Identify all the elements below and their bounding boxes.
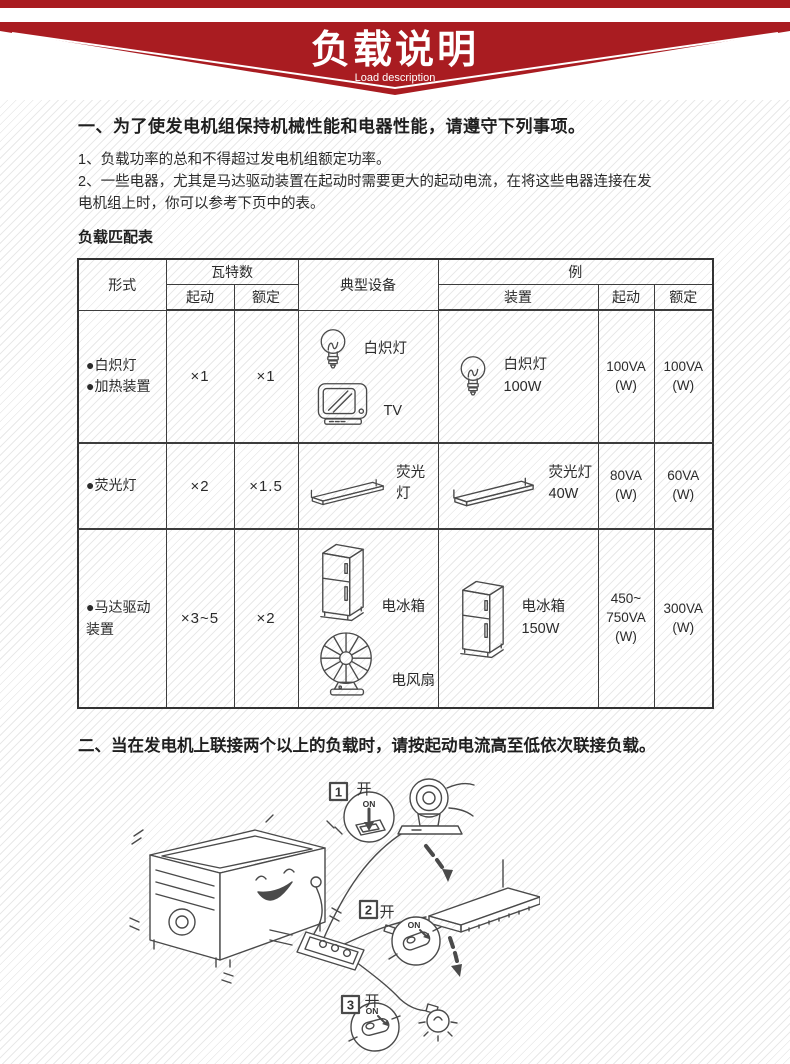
vibration-mark [222, 973, 233, 983]
row2-device: 荧光灯 40W [438, 443, 598, 529]
table-row: ●荧光灯 ×2 ×1.5 [78, 443, 713, 529]
header-type: 形式 [78, 259, 166, 310]
table-row: ●马达驱动 装置 ×3~5 ×2 [78, 529, 713, 708]
load-match-table-title: 负载匹配表 [78, 226, 153, 247]
header-ex-rated: 额定 [654, 285, 713, 311]
example-fridge-label: 电冰箱 150W [522, 597, 566, 639]
typical-fan-label: 电风扇 [392, 671, 436, 696]
row1-ex-start: 100VA (W) [598, 310, 654, 443]
section1-item2: 2、一些电器，尤其是马达驱动装置在起动时需要更大的起动电流，在将这些电器连接在发… [78, 174, 652, 212]
connection-order-illustration: 1 开 ON 2 开 ON 3 开 ON [120, 770, 540, 1060]
step1-number: 1 [335, 785, 342, 800]
typical-tv-item: TV [301, 381, 436, 426]
row2-typical: 荧光灯 [298, 443, 438, 529]
top-red-strip [0, 0, 790, 8]
step2-on-label: 开 [379, 904, 394, 921]
step3-on-text: ON [366, 1006, 379, 1016]
typical-bulb-label: 白炽灯 [364, 339, 408, 360]
row1-type: ●白炽灯 ●加热装置 [78, 310, 166, 443]
row3-ex-rated: 300VA (W) [654, 529, 713, 708]
row1-device: 白炽灯 100W [438, 310, 598, 443]
section2-heading: 二、当在发电机上联接两个以上的负载时，请按起动电流高至低依次联接负载。 [78, 732, 758, 756]
bulb-icon [317, 327, 349, 373]
step2-on-text: ON [408, 920, 421, 930]
typical-fluorescent-label: 荧光灯 [396, 463, 435, 509]
section1-paragraphs: 1、负载功率的总和不得超过发电机组额定功率。 2、一些电器，尤其是马达驱动装置在… [78, 149, 728, 215]
row3-ex-start: 450~ 750VA (W) [598, 529, 654, 708]
row1-rated: ×1 [234, 310, 298, 443]
fluorescent-icon [449, 477, 539, 509]
generator-outlet [311, 877, 321, 887]
row2-start: ×2 [166, 443, 234, 529]
banner-title: 负载说明 [311, 29, 479, 72]
row3-type: ●马达驱动 装置 [78, 529, 166, 708]
cable-to-motor [323, 832, 404, 940]
section1-item1: 1、负载功率的总和不得超过发电机组额定功率。 [78, 152, 391, 168]
fridge-icon [317, 541, 367, 623]
step3-number: 3 [347, 998, 354, 1013]
header-rated: 额定 [234, 285, 298, 311]
vibration-mark [132, 830, 143, 844]
bulb-icon [457, 354, 489, 400]
tv-icon [317, 381, 369, 426]
step2-number: 2 [365, 903, 372, 918]
typical-tv-label: TV [384, 401, 403, 426]
row1-start: ×1 [166, 310, 234, 443]
banner-subtitle: Load description [355, 72, 436, 84]
section1-heading: 一、为了使发电机组保持机械性能和电器性能，请遵守下列事项。 [78, 112, 738, 137]
row2-type: ●荧光灯 [78, 443, 166, 529]
header-example: 例 [438, 259, 713, 285]
row3-rated: ×2 [234, 529, 298, 708]
row1-typical: 白炽灯 TV [298, 310, 438, 443]
motor-device [398, 779, 474, 834]
manual-page: 负载说明 Load description 一、为了使发电机组保持机械性能和电器… [0, 0, 790, 1064]
load-match-table: 形式 瓦特数 典型设备 例 起动 额定 装置 起动 额定 ●白炽灯 ●加热装置 … [77, 258, 714, 709]
typical-fridge-item: 电冰箱 [301, 541, 436, 623]
load-description-banner: 负载说明 Load description [0, 0, 790, 100]
arrow-step2-to-step3 [450, 938, 462, 977]
step1-on-text: ON [363, 799, 376, 809]
vibration-mark [130, 918, 139, 930]
fluorescent-icon [307, 477, 389, 509]
typical-fluorescent-item: 荧光灯 [301, 463, 436, 509]
typical-fridge-label: 电冰箱 [382, 597, 426, 622]
example-bulb-label: 白炽灯 100W [504, 355, 548, 397]
row2-ex-start: 80VA (W) [598, 443, 654, 529]
header-device: 装置 [438, 285, 598, 311]
hanging-bulb [419, 1004, 457, 1041]
fan-icon [317, 629, 377, 697]
example-fridge-item: 电冰箱 150W [441, 578, 596, 660]
fridge-icon [457, 578, 507, 660]
header-watts: 瓦特数 [166, 259, 298, 285]
table-row: ●白炽灯 ●加热装置 ×1 ×1 [78, 310, 713, 443]
vibration-mark [266, 815, 273, 822]
typical-fan-item: 电风扇 [301, 629, 436, 697]
example-fluorescent-label: 荧光灯 40W [549, 463, 593, 509]
example-bulb-item: 白炽灯 100W [441, 354, 596, 400]
header-ex-start: 起动 [598, 285, 654, 311]
vibration-mark [327, 821, 342, 834]
power-strip [297, 932, 364, 970]
row2-ex-rated: 60VA (W) [654, 443, 713, 529]
typical-bulb-item: 白炽灯 [301, 327, 436, 373]
row1-ex-rated: 100VA (W) [654, 310, 713, 443]
row3-typical: 电冰箱 电风扇 [298, 529, 438, 708]
header-typical: 典型设备 [298, 259, 438, 310]
row3-start: ×3~5 [166, 529, 234, 708]
arrow-step1-to-step2 [426, 846, 453, 882]
row2-rated: ×1.5 [234, 443, 298, 529]
header-start: 起动 [166, 285, 234, 311]
step1-on-label: 开 [356, 781, 371, 798]
row3-device: 电冰箱 150W [438, 529, 598, 708]
example-fluorescent-item: 荧光灯 40W [441, 463, 596, 509]
